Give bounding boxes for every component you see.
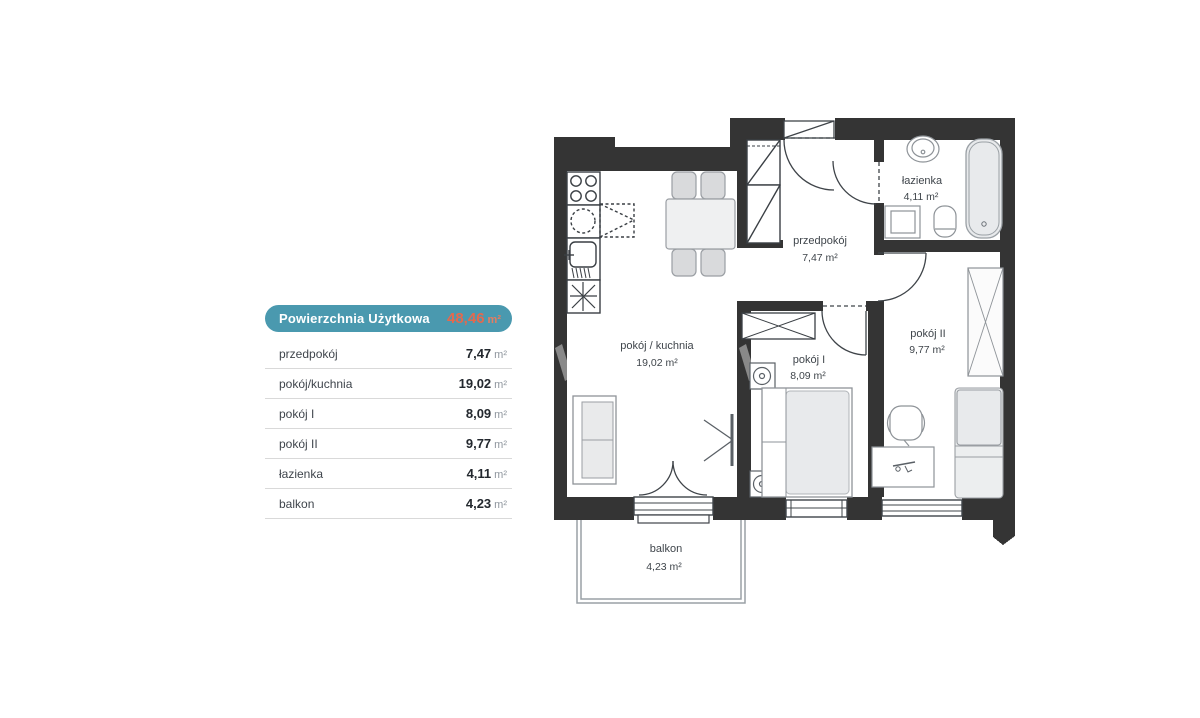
entrance-door [784, 121, 835, 190]
bathtub [966, 139, 1002, 238]
room2-door [878, 253, 926, 301]
single-bed [955, 388, 1003, 498]
round-sink-unit [567, 205, 600, 238]
chair [672, 249, 696, 276]
corner-cabinet [600, 204, 634, 237]
washing-machine [885, 206, 920, 238]
sofa [573, 396, 616, 484]
stove [567, 172, 600, 205]
hall-wardrobe [747, 140, 780, 243]
desk-chair [888, 406, 925, 446]
bathroom-fixtures [885, 136, 1002, 238]
room-label-balcony: balkon [650, 543, 682, 555]
chair [701, 172, 725, 199]
washbasin [907, 136, 939, 162]
balcony-door-frame [634, 497, 713, 523]
room-area-hall: 7,47 m² [802, 252, 838, 264]
room1-furniture [742, 313, 852, 497]
room-label-bath: łazienka [902, 175, 943, 187]
desk [872, 447, 934, 487]
chair [672, 172, 696, 199]
double-bed [762, 388, 852, 497]
chair [701, 249, 725, 276]
window-room2 [882, 500, 962, 516]
room2-wardrobe [968, 268, 1003, 376]
window-room1 [786, 500, 847, 517]
nightstand [750, 363, 775, 389]
room2-furniture [872, 268, 1003, 498]
fridge [567, 280, 600, 313]
dining-set [666, 172, 735, 276]
room-label-hall: przedpokój [793, 235, 847, 247]
room-label-room2: pokój II [910, 328, 945, 340]
room-area-room2: 9,77 m² [909, 344, 945, 356]
room1-door [822, 306, 866, 355]
floor-plan: pokój / kuchnia 19,02 m² przedpokój 7,47… [0, 0, 1200, 718]
balcony-french-doors [639, 461, 707, 495]
room-label-kitchen: pokój / kuchnia [620, 340, 694, 352]
room-area-bath: 4,11 m² [904, 191, 939, 203]
room-area-balcony: 4,23 m² [646, 561, 682, 573]
sink [564, 238, 600, 280]
floor-plan-page: Powierzchnia Użytkowa 48,46 m² przedpokó… [0, 0, 1200, 718]
room-area-room1: 8,09 m² [790, 370, 826, 382]
room-label-room1: pokój I [793, 354, 825, 366]
toilet [934, 206, 956, 237]
room1-wardrobe [742, 313, 815, 339]
room-area-kitchen: 19,02 m² [636, 357, 678, 369]
bathroom-door [833, 161, 879, 204]
windows [634, 497, 962, 523]
wall-tv [704, 414, 733, 466]
kitchen-units [564, 172, 634, 313]
dining-table [666, 199, 735, 249]
